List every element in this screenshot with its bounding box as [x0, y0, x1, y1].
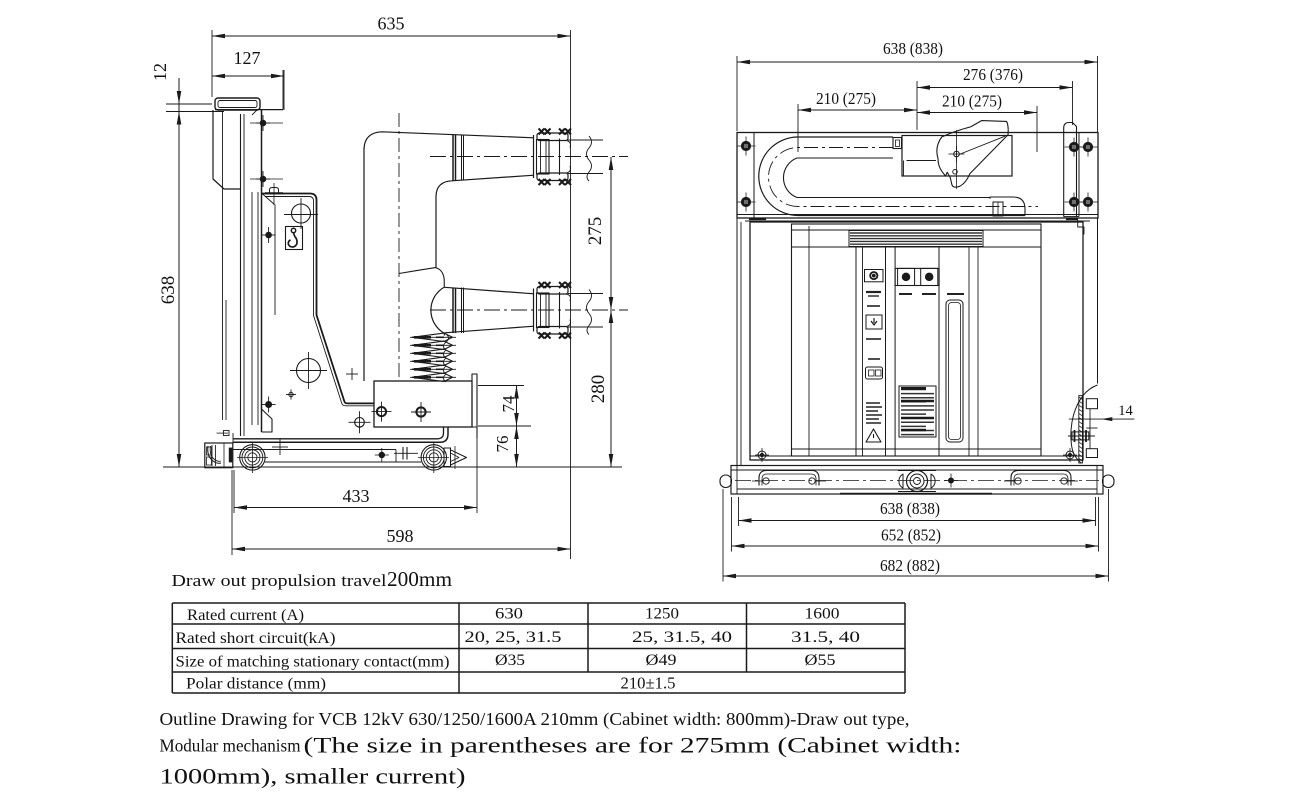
svg-text:31.5, 40: 31.5, 40	[791, 629, 860, 646]
svg-text:1250: 1250	[645, 606, 679, 623]
svg-text:Ø35: Ø35	[495, 652, 525, 669]
svg-text:1600: 1600	[805, 606, 840, 623]
svg-text:25, 31.5, 40: 25, 31.5, 40	[632, 629, 732, 646]
svg-text:127: 127	[234, 48, 261, 68]
svg-text:280: 280	[588, 375, 609, 404]
svg-text:598: 598	[387, 526, 414, 546]
svg-text:210 (275): 210 (275)	[816, 89, 876, 108]
svg-text:433: 433	[343, 486, 370, 506]
svg-text:Ø55: Ø55	[805, 652, 836, 669]
svg-text:Size of matching stationary co: Size of matching stationary contact(mm)	[176, 654, 450, 671]
svg-text:652 (852): 652 (852)	[881, 526, 941, 545]
svg-text:Modular mechanism: Modular mechanism	[160, 736, 301, 756]
svg-text:635: 635	[378, 14, 405, 34]
svg-text:275: 275	[585, 217, 606, 246]
svg-text:638 (838): 638 (838)	[883, 39, 943, 58]
svg-text:210±1.5: 210±1.5	[621, 674, 676, 693]
svg-text:638: 638	[158, 276, 179, 305]
svg-text:200mm: 200mm	[387, 567, 452, 591]
svg-text:20, 25, 31.5: 20, 25, 31.5	[465, 629, 562, 646]
svg-text:(The size in parentheses are f: (The size in parentheses are for 275mm (…	[304, 733, 962, 758]
svg-text:Polar distance (mm): Polar distance (mm)	[186, 676, 326, 693]
svg-text:Rated current (A): Rated current (A)	[187, 607, 304, 624]
svg-text:1000mm), smaller current): 1000mm), smaller current)	[160, 764, 466, 789]
svg-text:76: 76	[493, 436, 512, 453]
svg-text:630: 630	[495, 606, 523, 623]
svg-text:Outline Drawing for VCB 12kV: Outline Drawing for VCB 12kV 630/1250/16…	[160, 709, 910, 730]
svg-text:Rated short circuit(kA): Rated short circuit(kA)	[176, 630, 336, 647]
svg-text:14: 14	[1118, 403, 1133, 419]
svg-text:638 (838): 638 (838)	[880, 499, 940, 518]
svg-text:12: 12	[150, 63, 170, 81]
svg-text:210 (275): 210 (275)	[942, 92, 1002, 111]
svg-text:682 (882): 682 (882)	[880, 556, 940, 575]
svg-text:Draw out propulsion travel: Draw out propulsion travel	[172, 571, 387, 590]
svg-text:Ø49: Ø49	[646, 652, 677, 669]
svg-text:276 (376): 276 (376)	[963, 65, 1023, 84]
